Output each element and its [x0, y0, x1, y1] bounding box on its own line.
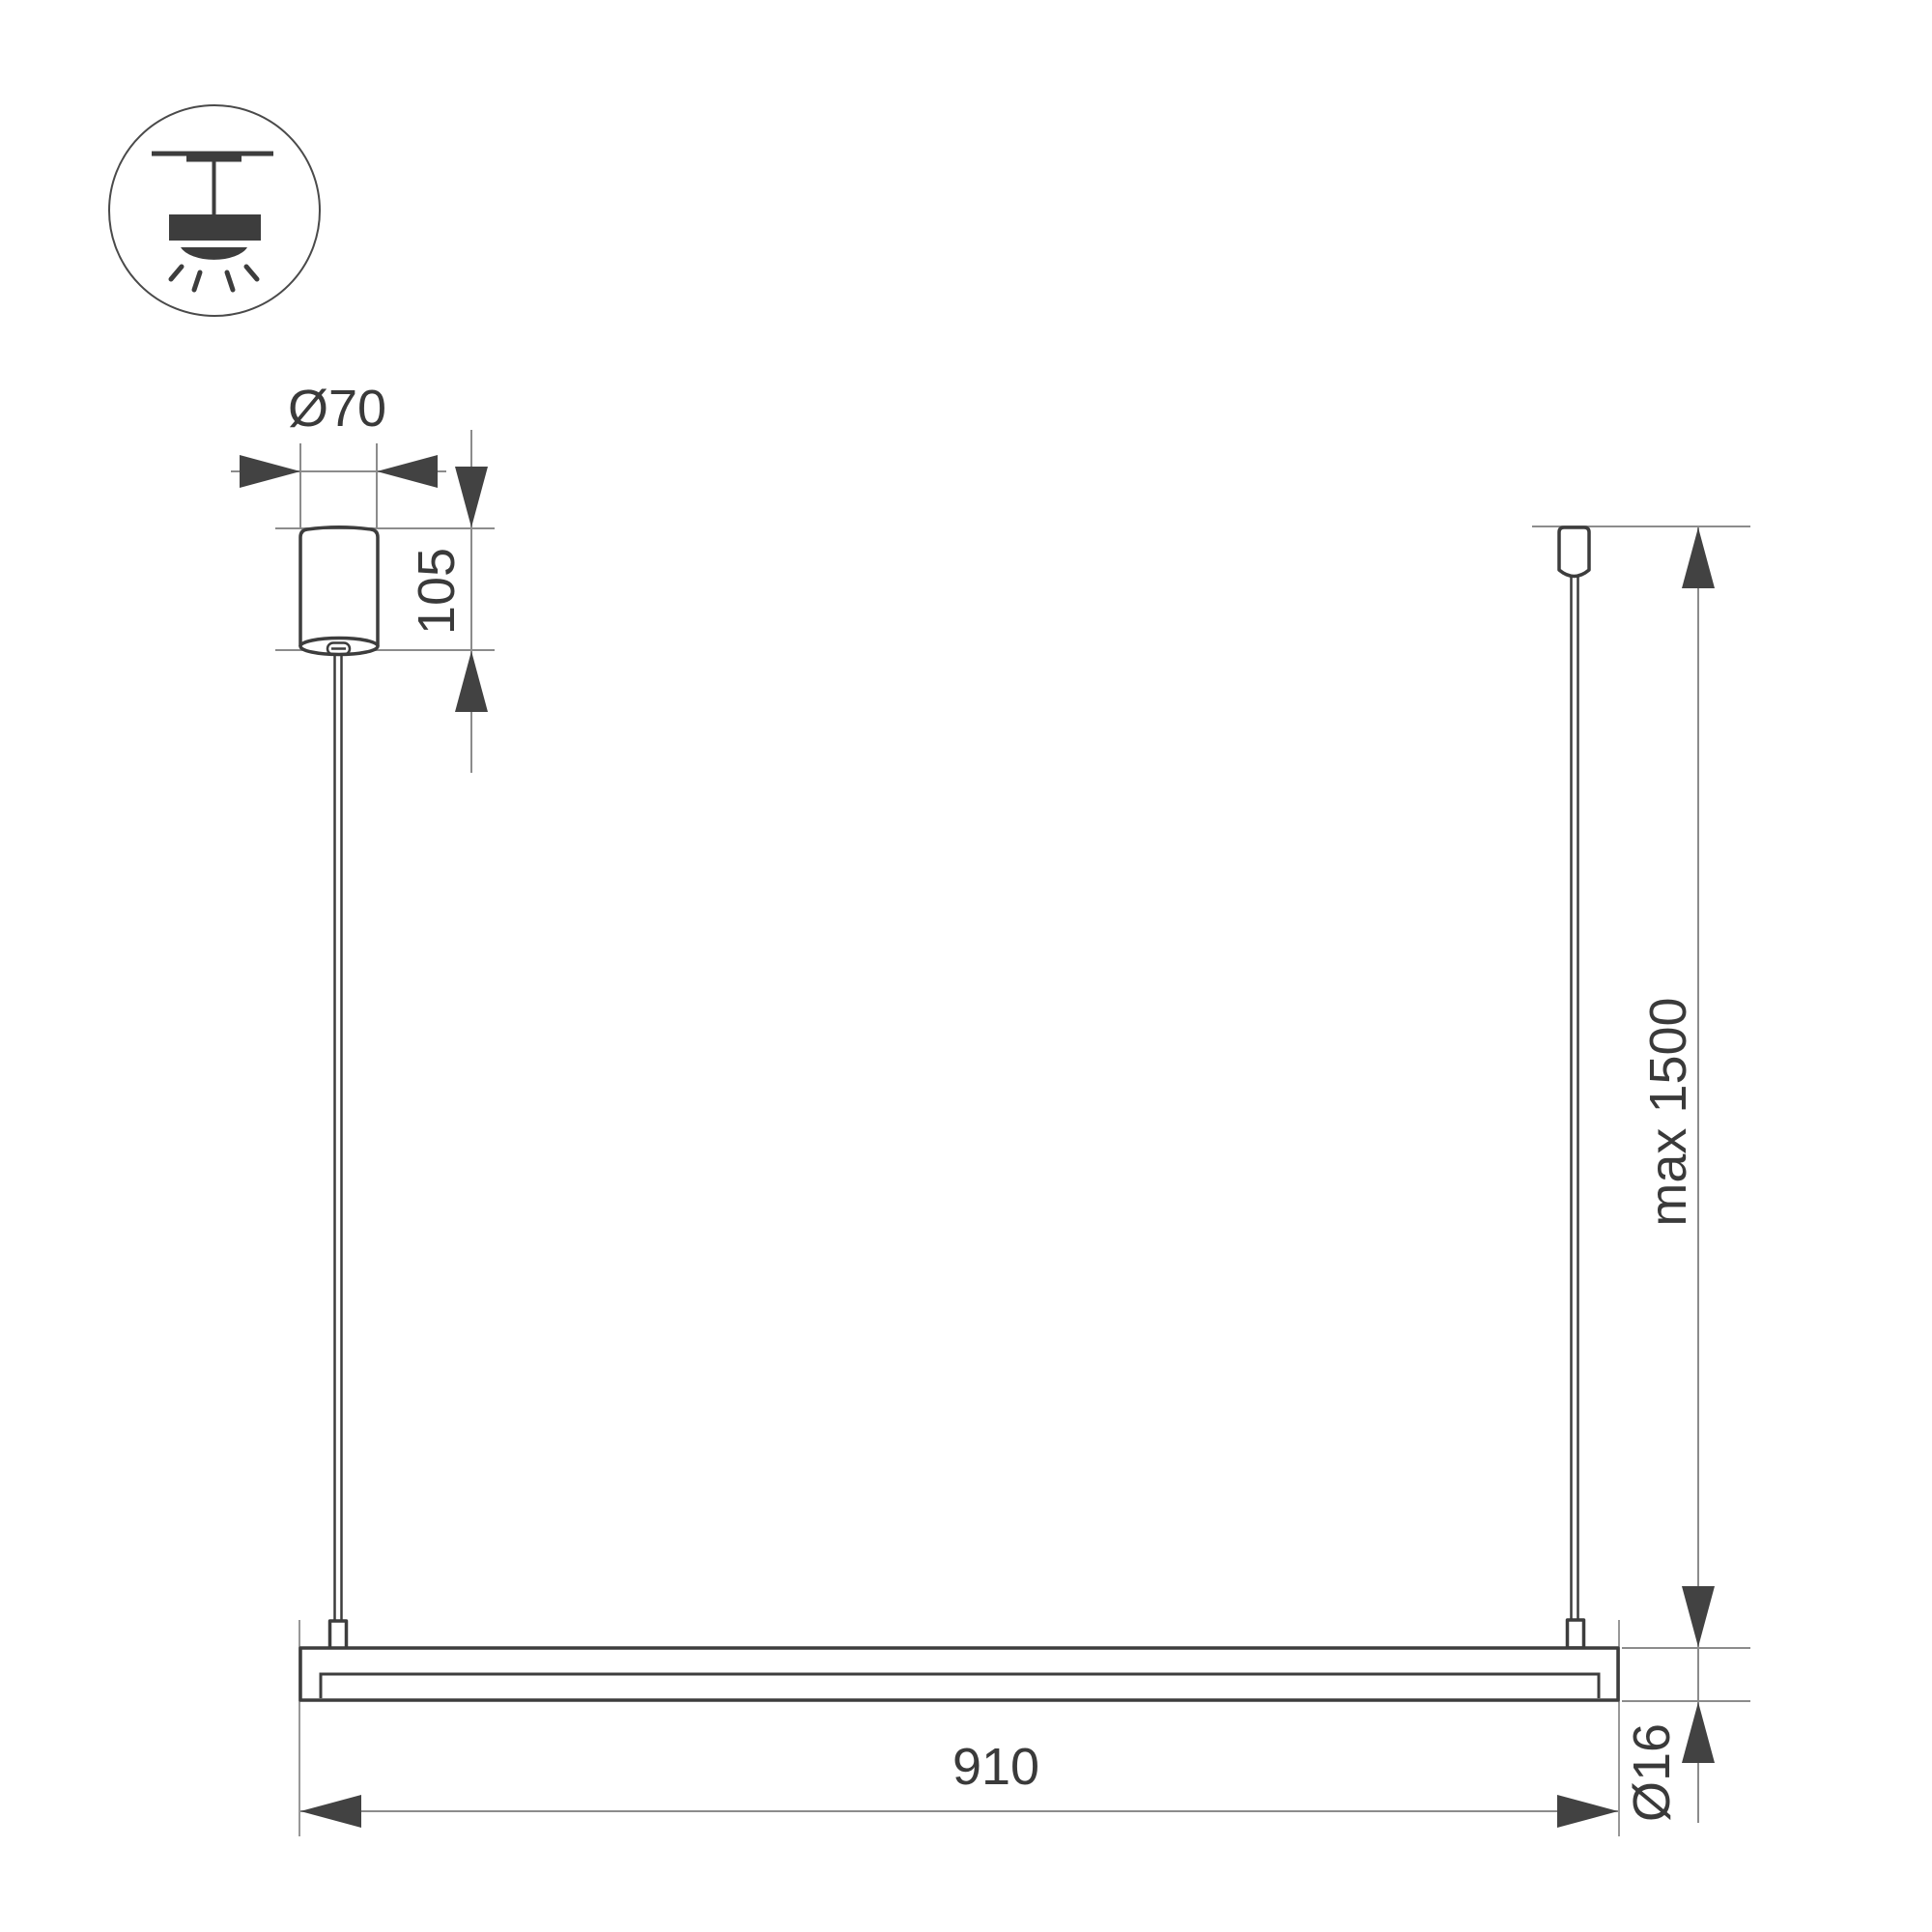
bar-length-label: 910: [952, 1738, 1039, 1796]
light-ray: [246, 267, 257, 279]
max-suspension-label: max 1500: [1639, 997, 1697, 1226]
dim-canopy-height: 105: [408, 467, 488, 712]
lamp-shade-dome: [181, 247, 247, 260]
right-cable-holder: [1568, 1620, 1584, 1648]
arrow-left-icon: [377, 455, 438, 488]
light-ray: [171, 267, 182, 279]
pendant-ceiling-light-icon: [152, 154, 273, 290]
light-ray: [194, 272, 200, 290]
arrow-down-icon: [1682, 1586, 1715, 1647]
arrow-right-icon: [240, 455, 300, 488]
ceiling-canopy: [300, 527, 378, 646]
dim-bar-length: 910: [300, 1738, 1618, 1828]
dim-bar-diameter: Ø16: [1623, 1702, 1715, 1822]
light-ray: [227, 272, 233, 290]
left-suspension: [300, 527, 378, 1649]
arrow-up-icon: [455, 651, 488, 712]
canopy-diameter-label: Ø70: [288, 380, 386, 438]
light-rays-icon: [171, 267, 257, 290]
left-cable-holder: [330, 1621, 347, 1649]
light-bar: [300, 1648, 1618, 1700]
bar-diameter-label: Ø16: [1623, 1723, 1681, 1822]
canopy-bottom-rim: [300, 639, 378, 655]
canopy-height-label: 105: [408, 548, 466, 635]
arrow-up-icon: [1682, 1702, 1715, 1763]
right-suspension: [1559, 527, 1589, 1648]
arrow-down-icon: [455, 467, 488, 527]
arrow-up-icon: [1682, 527, 1715, 588]
right-ceiling-cup: [1559, 527, 1589, 577]
mount-type-badge: [109, 105, 320, 316]
dimension-drawing-canvas: Ø70 105 max 1500 Ø16 910: [0, 0, 1932, 1932]
lamp-body: [169, 214, 261, 241]
pendant-lamp-dimension-drawing: Ø70 105 max 1500 Ø16 910: [0, 0, 1932, 1932]
extension-lines: [231, 430, 1750, 1836]
arrow-left-icon: [300, 1795, 361, 1828]
arrow-right-icon: [1557, 1795, 1618, 1828]
dim-max-suspension: max 1500: [1639, 527, 1715, 1647]
